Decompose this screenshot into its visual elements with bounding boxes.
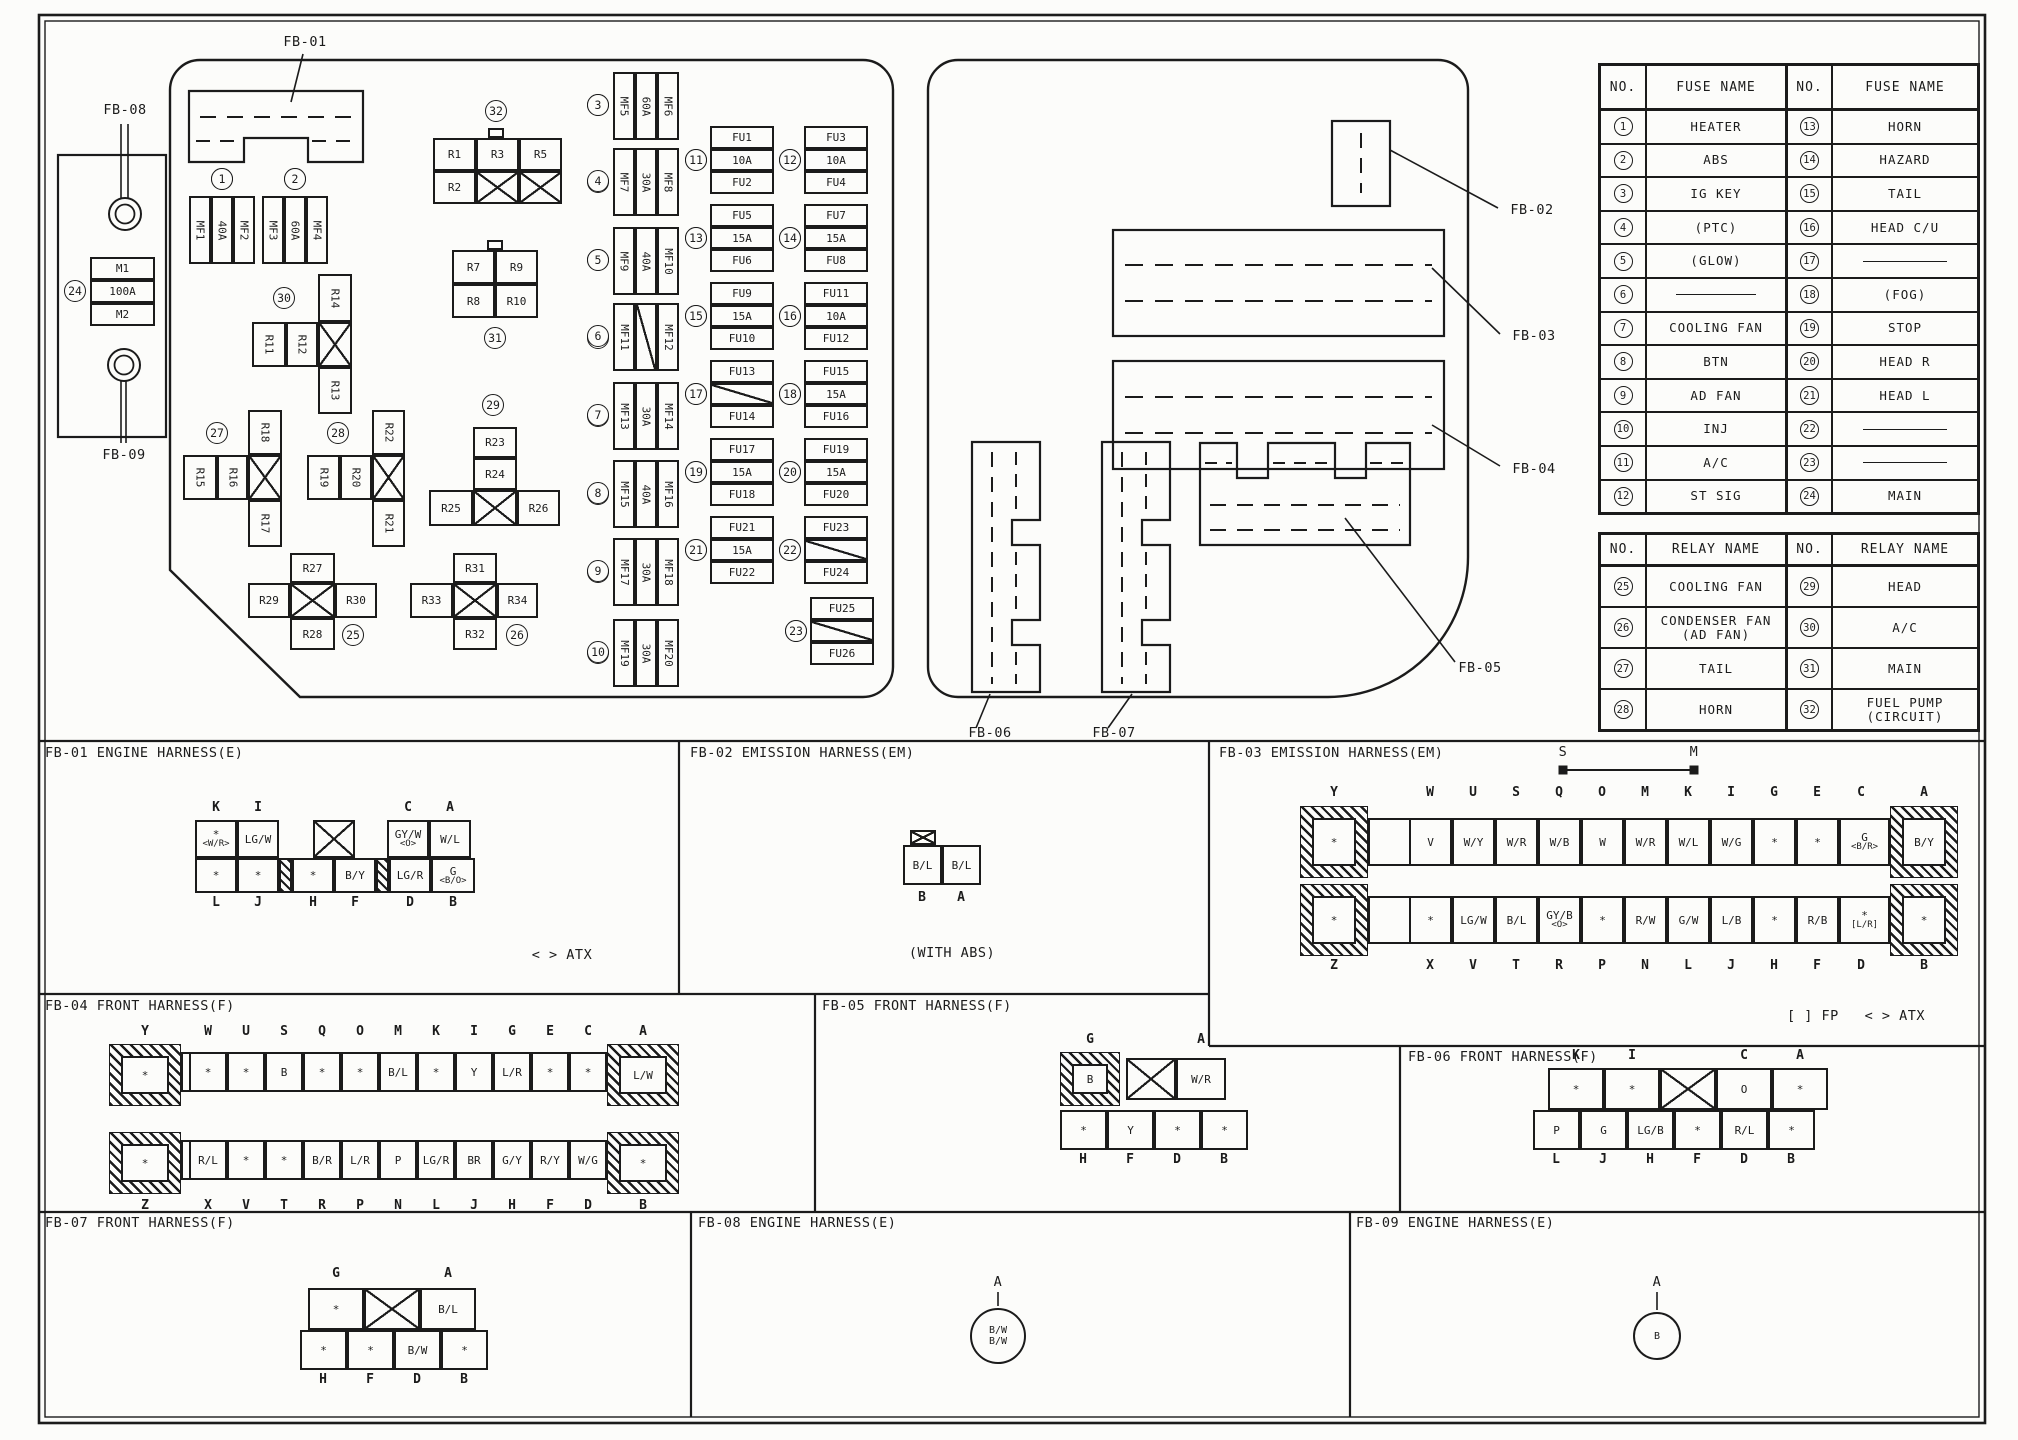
cell-m2: M2 bbox=[90, 303, 155, 326]
table-name-cell: IG KEY bbox=[1646, 177, 1786, 211]
end-cell-inner: * bbox=[1312, 818, 1356, 866]
circled-9: 9 bbox=[587, 560, 609, 582]
cell-40a: 40A bbox=[211, 196, 233, 264]
cell-text: 15A bbox=[826, 233, 846, 244]
end-cell-inner: * bbox=[1902, 896, 1946, 944]
table-name-line: HEAD bbox=[1888, 580, 1922, 594]
cell-text: B bbox=[281, 1067, 288, 1078]
crossed-cell bbox=[290, 583, 335, 618]
cell-text: FU8 bbox=[826, 255, 846, 266]
cell-text: BR bbox=[467, 1155, 480, 1166]
secondary-panel-outline bbox=[928, 60, 1468, 697]
cell-text: B/W bbox=[408, 1345, 428, 1356]
cell-item: * bbox=[1060, 1110, 1107, 1150]
circled-25: 25 bbox=[1614, 577, 1633, 596]
circled-27: 27 bbox=[206, 422, 228, 444]
cell-text: P bbox=[395, 1155, 402, 1166]
cell-w-r: W/R bbox=[1176, 1058, 1226, 1100]
circled-31: 31 bbox=[1800, 659, 1819, 678]
fb03-pin-label-d: D bbox=[1857, 958, 1865, 974]
cell-w-g: W/G bbox=[1710, 818, 1753, 866]
cell-text: LG/W bbox=[245, 834, 272, 845]
cell-100a: 100A bbox=[90, 280, 155, 303]
cell-text: FU2 bbox=[732, 177, 752, 188]
cell-text: R3 bbox=[491, 149, 504, 160]
table-header: RELAY NAME bbox=[1832, 534, 1978, 566]
cell-r2: R2 bbox=[433, 171, 476, 204]
cell-r21: R21 bbox=[372, 500, 405, 547]
cell-15a: 15A bbox=[710, 539, 774, 561]
cell-text: * bbox=[142, 1158, 149, 1169]
fb03-pin-label-g: G bbox=[1770, 785, 1778, 801]
cell-text: * bbox=[1797, 1084, 1804, 1095]
cell-text: B/L bbox=[388, 1067, 408, 1078]
cell-r10: R10 bbox=[495, 284, 538, 318]
terminal-text: B/W bbox=[989, 1325, 1007, 1336]
end-cell-item: * bbox=[607, 1132, 679, 1194]
cell-item: * bbox=[417, 1052, 455, 1092]
cell-text: R/L bbox=[198, 1155, 218, 1166]
fb07-pin-label-g: G bbox=[332, 1266, 340, 1282]
cell-text: *[L/R] bbox=[1851, 910, 1878, 930]
cell-p: P bbox=[1533, 1110, 1580, 1150]
fb04-pin-label-l: L bbox=[432, 1198, 440, 1214]
cell-text: R7 bbox=[467, 262, 480, 273]
cell-text: LG/B bbox=[1637, 1125, 1664, 1136]
cell-text: MF10 bbox=[663, 248, 674, 275]
end-cell-item: * bbox=[1890, 884, 1958, 956]
blank-entry-dash bbox=[1863, 462, 1947, 463]
cell-fu6: FU6 bbox=[710, 249, 774, 272]
fb03-pin-label-c: C bbox=[1857, 785, 1865, 801]
circled-13: 13 bbox=[1800, 117, 1819, 136]
table-name-line: HEAD R bbox=[1879, 355, 1930, 369]
cell-text: B/L bbox=[913, 860, 933, 871]
table-no-cell: 17 bbox=[1786, 244, 1832, 278]
crossed-cell bbox=[910, 830, 936, 845]
cell-text: * bbox=[547, 1067, 554, 1078]
crossed-cell bbox=[453, 583, 497, 618]
fb01-connector-shape bbox=[189, 91, 363, 162]
fb04-pin-label-n: N bbox=[394, 1198, 402, 1214]
circled-3: 3 bbox=[1614, 184, 1633, 203]
fb02-callout: FB-02 bbox=[1510, 202, 1553, 218]
circled-11: 11 bbox=[685, 149, 707, 171]
cell-g-w: G/W bbox=[1667, 896, 1710, 944]
fb06-leader bbox=[976, 694, 990, 728]
cell-text: LG/W bbox=[1460, 915, 1487, 926]
cell-text: 30A bbox=[641, 172, 652, 192]
cell-text: * bbox=[255, 870, 262, 881]
circled-7: 7 bbox=[587, 404, 609, 426]
cell-text: L/B bbox=[1722, 915, 1742, 926]
fb07-pin-label-b: B bbox=[460, 1372, 468, 1388]
cell-text: 10A bbox=[826, 155, 846, 166]
table-no-cell: 16 bbox=[1786, 211, 1832, 245]
cell-item: * bbox=[1772, 1068, 1828, 1110]
cell-40a: 40A bbox=[635, 227, 657, 295]
cell-text: B/R bbox=[312, 1155, 332, 1166]
cell-r34: R34 bbox=[497, 583, 538, 618]
cell-text: R27 bbox=[303, 563, 323, 574]
fb03-pin-label-y: Y bbox=[1330, 785, 1338, 801]
cell-40a: 40A bbox=[635, 460, 657, 528]
table-no-cell: 26 bbox=[1600, 607, 1646, 648]
cell-text: MF15 bbox=[619, 481, 630, 508]
cell-text: R29 bbox=[259, 595, 279, 606]
circled-5: 5 bbox=[1614, 252, 1633, 271]
table-name-cell bbox=[1832, 446, 1978, 480]
cell-item: * bbox=[308, 1288, 364, 1330]
cell-text: FU13 bbox=[729, 366, 756, 377]
cell-mf10: MF10 bbox=[657, 227, 679, 295]
cell-item: * bbox=[237, 858, 279, 893]
table-no-cell: 4 bbox=[1600, 211, 1646, 245]
cell-text: FU3 bbox=[826, 132, 846, 143]
circled-21: 21 bbox=[1800, 386, 1819, 405]
hatched-separator bbox=[279, 858, 292, 893]
cell-item: * bbox=[292, 858, 334, 893]
cell-r7: R7 bbox=[452, 250, 495, 284]
connector-strip bbox=[487, 240, 503, 250]
cell-text: FU21 bbox=[729, 522, 756, 533]
cell-text: M2 bbox=[116, 309, 129, 320]
fb06-pin-label-c: C bbox=[1740, 1048, 1748, 1064]
cell-text: FU7 bbox=[826, 210, 846, 221]
fb09-ring-inner bbox=[115, 356, 134, 375]
circled-2: 2 bbox=[1614, 151, 1633, 170]
table-name-cell: (PTC) bbox=[1646, 211, 1786, 245]
blank-entry-dash bbox=[1863, 429, 1947, 430]
s-marker: S bbox=[1559, 744, 1568, 760]
cell-fu2: FU2 bbox=[710, 171, 774, 194]
end-cell-item: * bbox=[1300, 884, 1368, 956]
cell-fu7: FU7 bbox=[804, 204, 868, 227]
end-cell-item: * bbox=[109, 1132, 181, 1194]
fb04-pin-label-g: G bbox=[508, 1024, 516, 1040]
cell-text: 15A bbox=[732, 467, 752, 478]
cell-text: * bbox=[205, 1067, 212, 1078]
cell-text: * bbox=[142, 1070, 149, 1081]
cell-mf4: MF4 bbox=[306, 196, 328, 264]
fb06-pin-label-f: F bbox=[1693, 1152, 1701, 1168]
table-name-line: HEATER bbox=[1690, 120, 1741, 134]
cell-mf3: MF3 bbox=[262, 196, 284, 264]
cell-text: 15A bbox=[732, 545, 752, 556]
cell-text: FU22 bbox=[729, 567, 756, 578]
cell-text: MF17 bbox=[619, 559, 630, 586]
fb01-pin-label-i: I bbox=[254, 800, 262, 816]
circled-23: 23 bbox=[785, 620, 807, 642]
fb04-pin-label-y: Y bbox=[141, 1024, 149, 1040]
fb03-pin-label-a: A bbox=[1920, 785, 1928, 801]
fb06-callout: FB-06 bbox=[968, 725, 1011, 741]
table-name-line: HAZARD bbox=[1879, 153, 1930, 167]
circled-20: 20 bbox=[779, 461, 801, 483]
cell-text: V bbox=[1427, 837, 1434, 848]
cell-l-r: L/R bbox=[341, 1140, 379, 1180]
cell-mf9: MF9 bbox=[613, 227, 635, 295]
circled-2: 2 bbox=[284, 168, 306, 190]
circled-23: 23 bbox=[1800, 453, 1819, 472]
table-name-cell: HEAD bbox=[1832, 566, 1978, 607]
fb06-pin-label-d: D bbox=[1740, 1152, 1748, 1168]
fb05-pin-label-d: D bbox=[1173, 1152, 1181, 1168]
cell-text: R19 bbox=[318, 468, 329, 488]
fb04-pin-label-i: I bbox=[470, 1024, 478, 1040]
end-cell-item: * bbox=[1300, 806, 1368, 878]
terminal-text: B/W bbox=[989, 1336, 1007, 1347]
cell-r16: R16 bbox=[217, 455, 248, 500]
cell-r-b: R/B bbox=[1796, 896, 1839, 944]
cell-10a: 10A bbox=[804, 149, 868, 171]
fb09-callout: FB-09 bbox=[102, 447, 145, 463]
cell-text: 60A bbox=[290, 220, 301, 240]
cell-fu16: FU16 bbox=[804, 405, 868, 428]
cell-g-b-o: G<B/O> bbox=[431, 858, 475, 893]
cell-text: 30A bbox=[641, 406, 652, 426]
cell-text: 10A bbox=[732, 155, 752, 166]
cell-item: * bbox=[303, 1052, 341, 1092]
end-cell-inner: * bbox=[121, 1056, 169, 1094]
cell-text: R1 bbox=[448, 149, 461, 160]
circled-18: 18 bbox=[1800, 285, 1819, 304]
fb03-pin-label-u: U bbox=[1469, 785, 1477, 801]
sec-fb04-title: FB-04 FRONT HARNESS(F) bbox=[45, 998, 235, 1014]
fb04-connector-shape bbox=[1113, 361, 1444, 469]
fb06-pin-label-l: L bbox=[1552, 1152, 1560, 1168]
cell-text: R24 bbox=[485, 469, 505, 480]
cell-text: FU23 bbox=[823, 522, 850, 533]
table-no-cell: 20 bbox=[1786, 345, 1832, 379]
crossed-cell bbox=[372, 455, 405, 500]
cell-r32: R32 bbox=[453, 618, 497, 650]
cell-text: GY/W<O> bbox=[395, 829, 422, 849]
cell-text: 15A bbox=[732, 311, 752, 322]
cell-item: * bbox=[1409, 896, 1452, 944]
cell-text: G<B/R> bbox=[1851, 832, 1878, 852]
cell-text: R/Y bbox=[540, 1155, 560, 1166]
cell-text: R25 bbox=[441, 503, 461, 514]
fb01-callout: FB-01 bbox=[283, 34, 326, 50]
circled-10: 10 bbox=[1614, 420, 1633, 439]
cell-text: FU15 bbox=[823, 366, 850, 377]
cell-text: 30A bbox=[641, 643, 652, 663]
circled-4: 4 bbox=[1614, 218, 1633, 237]
cell-text: FU5 bbox=[732, 210, 752, 221]
slash-cell bbox=[804, 539, 868, 561]
table-header: FUSE NAME bbox=[1832, 65, 1978, 110]
circled-28: 28 bbox=[327, 422, 349, 444]
circled-10: 10 bbox=[587, 641, 609, 663]
sec-fb09-title: FB-09 ENGINE HARNESS(E) bbox=[1356, 1215, 1554, 1231]
cell-text: LG/R bbox=[397, 870, 424, 881]
cell-text: * bbox=[1221, 1125, 1228, 1136]
table-header: NO. bbox=[1600, 65, 1646, 110]
cell-text: MF9 bbox=[619, 251, 630, 271]
cell-fu12: FU12 bbox=[804, 327, 868, 350]
fb08-callout: FB-08 bbox=[103, 102, 146, 118]
circled-16: 16 bbox=[1800, 218, 1819, 237]
cell-15a: 15A bbox=[804, 227, 868, 249]
cell-text: W/Y bbox=[1464, 837, 1484, 848]
cell-text: * bbox=[243, 1067, 250, 1078]
fb04-pin-label-s: S bbox=[280, 1024, 288, 1040]
cell-text: FU17 bbox=[729, 444, 756, 455]
fb03-connector-shape bbox=[1113, 230, 1444, 336]
cell-item: * bbox=[189, 1052, 227, 1092]
table-name-cell: HEAD R bbox=[1832, 345, 1978, 379]
connector-strip bbox=[488, 128, 504, 138]
cell-g: G bbox=[1580, 1110, 1627, 1150]
cell-text: MF20 bbox=[663, 640, 674, 667]
fb03-pin-label-k: K bbox=[1684, 785, 1692, 801]
cell-text: 60A bbox=[641, 96, 652, 116]
cell-r20: R20 bbox=[340, 455, 372, 500]
cell-30a: 30A bbox=[635, 148, 657, 216]
cell-mf19: MF19 bbox=[613, 619, 635, 687]
table-name-cell: STOP bbox=[1832, 312, 1978, 346]
cell-60a: 60A bbox=[284, 196, 306, 264]
table-name-cell: CONDENSER FAN(AD FAN) bbox=[1646, 607, 1786, 648]
cell-text: G bbox=[1600, 1125, 1607, 1136]
cell-text: FU11 bbox=[823, 288, 850, 299]
table-name-cell: COOLING FAN bbox=[1646, 566, 1786, 607]
table-name-cell: ST SIG bbox=[1646, 480, 1786, 514]
circled-19: 19 bbox=[1800, 319, 1819, 338]
cell-text: * bbox=[1788, 1125, 1795, 1136]
table-name-cell: BTN bbox=[1646, 345, 1786, 379]
cell-text: R8 bbox=[467, 296, 480, 307]
cell-mf17: MF17 bbox=[613, 538, 635, 606]
end-cell-inner: L/W bbox=[619, 1056, 667, 1094]
cell-30a: 30A bbox=[635, 382, 657, 450]
table-name-line: CONDENSER FAN bbox=[1661, 614, 1772, 628]
cell-text: W/G bbox=[1722, 837, 1742, 848]
cell-item: * bbox=[441, 1330, 488, 1370]
cell-text: MF3 bbox=[268, 220, 279, 240]
cell-text: B bbox=[1087, 1074, 1094, 1085]
cell-r19: R19 bbox=[307, 455, 340, 500]
cell-text: FU9 bbox=[732, 288, 752, 299]
fb07-pin-label-d: D bbox=[413, 1372, 421, 1388]
fb01-pin-label-b: B bbox=[449, 895, 457, 911]
cell-text: MF7 bbox=[619, 172, 630, 192]
table-name-line: INJ bbox=[1703, 422, 1729, 436]
cell-text: R28 bbox=[303, 629, 323, 640]
cell-text: * bbox=[1921, 915, 1928, 926]
fb04-pin-label-b: B bbox=[639, 1198, 647, 1214]
cell-b-l: B/L bbox=[420, 1288, 476, 1330]
circled-26: 26 bbox=[506, 624, 528, 646]
fb07-pin-label-a: A bbox=[444, 1266, 452, 1282]
table-name-cell bbox=[1832, 244, 1978, 278]
circled-1: 1 bbox=[1614, 117, 1633, 136]
table-name-cell: TAIL bbox=[1646, 648, 1786, 689]
cell-text: FU18 bbox=[729, 489, 756, 500]
fb09-ring-outer bbox=[108, 349, 140, 381]
circled-32: 32 bbox=[485, 100, 507, 122]
cell-text: FU12 bbox=[823, 333, 850, 344]
cell-r-w: R/W bbox=[1624, 896, 1667, 944]
cell-text: B/Y bbox=[1914, 837, 1934, 848]
circled-29: 29 bbox=[1800, 577, 1819, 596]
circled-19: 19 bbox=[685, 461, 707, 483]
table-name-line: A/C bbox=[1892, 621, 1918, 635]
cell-text: * bbox=[585, 1067, 592, 1078]
cell-text: * bbox=[333, 1304, 340, 1315]
cell-b-l: B/L bbox=[903, 845, 942, 885]
sec-fb08-title: FB-08 ENGINE HARNESS(E) bbox=[698, 1215, 896, 1231]
cell-p: P bbox=[379, 1140, 417, 1180]
table-no-cell: 7 bbox=[1600, 312, 1646, 346]
fb01-pin-label-k: K bbox=[212, 800, 220, 816]
cell-mf6: MF6 bbox=[657, 72, 679, 140]
cell-mf5: MF5 bbox=[613, 72, 635, 140]
table-name-line: COOLING FAN bbox=[1669, 580, 1763, 594]
fb03-pin-label-e: E bbox=[1813, 785, 1821, 801]
cell-item: * bbox=[1604, 1068, 1660, 1110]
cell-text: * bbox=[1427, 915, 1434, 926]
cell-r1: R1 bbox=[433, 138, 476, 171]
cell-fu24: FU24 bbox=[804, 561, 868, 584]
cell-lg-r: LG/R bbox=[389, 858, 431, 893]
table-name-cell: (FOG) bbox=[1832, 278, 1978, 312]
cell-15a: 15A bbox=[710, 461, 774, 483]
cell-item: * bbox=[1581, 896, 1624, 944]
cell-mf2: MF2 bbox=[233, 196, 255, 264]
cell-text: G<B/O> bbox=[439, 866, 466, 886]
cell-item: * bbox=[300, 1330, 347, 1370]
cell-text: MF12 bbox=[663, 324, 674, 351]
fb01-pin-label-d: D bbox=[406, 895, 414, 911]
table-name-cell: MAIN bbox=[1832, 648, 1978, 689]
cell-text: * bbox=[1573, 1084, 1580, 1095]
cell-item: * bbox=[227, 1052, 265, 1092]
circled-31: 31 bbox=[484, 327, 506, 349]
cell-text: W/R bbox=[1507, 837, 1527, 848]
cell-mf11: MF11 bbox=[613, 303, 635, 371]
table-no-cell: 2 bbox=[1600, 144, 1646, 178]
cell-text: * bbox=[1174, 1125, 1181, 1136]
cell-text: MF11 bbox=[619, 324, 630, 351]
cell-text: FU24 bbox=[823, 567, 850, 578]
crossed-cell bbox=[364, 1288, 420, 1330]
cell-text: R22 bbox=[383, 423, 394, 443]
cell-text: L/R bbox=[502, 1067, 522, 1078]
cell-item: * bbox=[1753, 896, 1796, 944]
fb01-pin-label-h: H bbox=[309, 895, 317, 911]
circled-11: 11 bbox=[1614, 453, 1633, 472]
cell-r13: R13 bbox=[318, 367, 352, 414]
cell-fu5: FU5 bbox=[710, 204, 774, 227]
cell-l-b: L/B bbox=[1710, 896, 1753, 944]
fb04-pin-label-x: X bbox=[204, 1198, 212, 1214]
fb07-callout: FB-07 bbox=[1092, 725, 1135, 741]
sec-fb02-title: FB-02 EMISSION HARNESS(EM) bbox=[690, 745, 914, 761]
cell-fu1: FU1 bbox=[710, 126, 774, 149]
cell-text: L/W bbox=[633, 1070, 653, 1081]
cell-text: G/W bbox=[1679, 915, 1699, 926]
cell-text: FU19 bbox=[823, 444, 850, 455]
cell-r14: R14 bbox=[318, 274, 352, 322]
cell-text: R20 bbox=[351, 468, 362, 488]
cell-fu17: FU17 bbox=[710, 438, 774, 461]
fb03-pin-label-s: S bbox=[1512, 785, 1520, 801]
cell-r17: R17 bbox=[248, 500, 282, 547]
fb03-callout: FB-03 bbox=[1512, 328, 1555, 344]
cell-text: FU6 bbox=[732, 255, 752, 266]
